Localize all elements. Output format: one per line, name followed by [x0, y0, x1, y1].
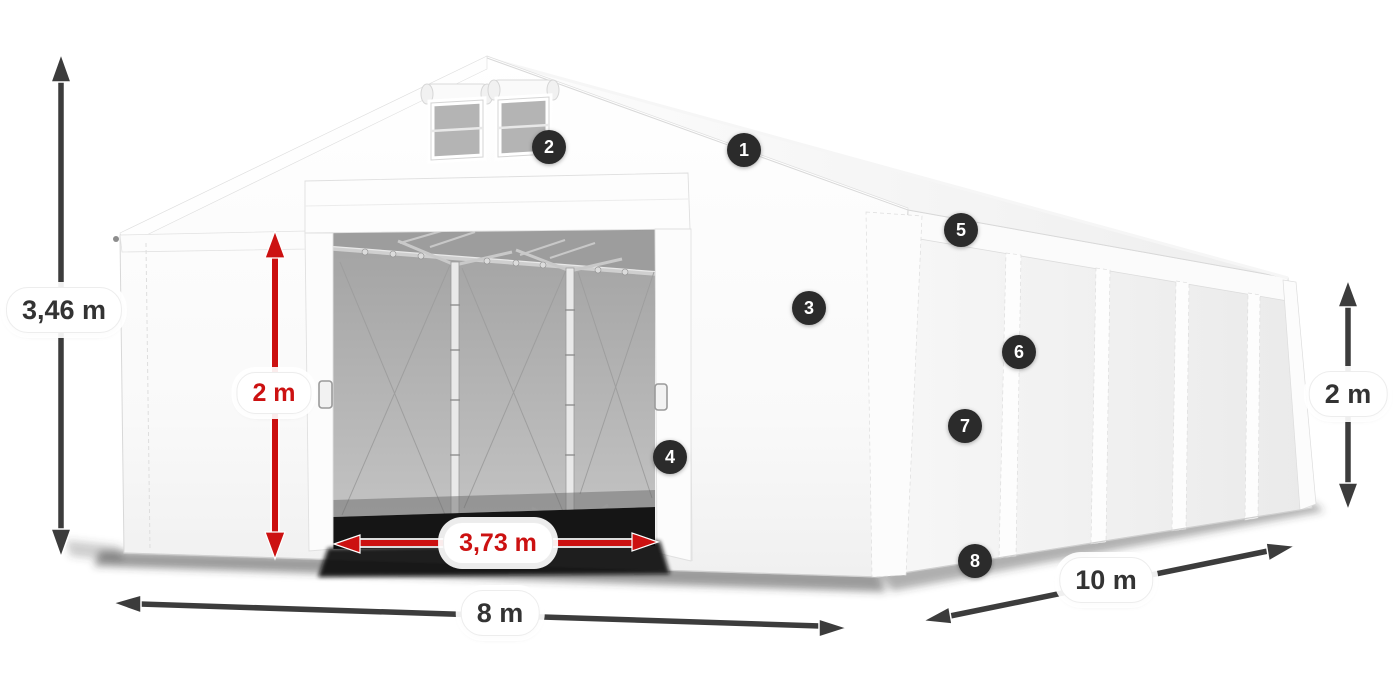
hotspot-7[interactable]: 7	[948, 409, 982, 443]
hotspot-4[interactable]: 4	[653, 440, 687, 474]
hotspot-2[interactable]: 2	[532, 130, 566, 164]
front-width-label: 8 m	[461, 590, 540, 636]
hotspot-8[interactable]: 8	[958, 544, 992, 578]
hotspot-3[interactable]: 3	[792, 291, 826, 325]
entrance-header	[305, 173, 690, 233]
door-handle-right	[655, 384, 667, 410]
hotspot-1[interactable]: 1	[727, 133, 761, 167]
entrance-width-label: 3,73 m	[443, 522, 553, 564]
entrance-height-label: 2 m	[236, 372, 311, 414]
gable-vent-left	[421, 84, 493, 160]
tent-illustration	[0, 0, 1400, 700]
hotspot-5[interactable]: 5	[944, 213, 978, 247]
hotspot-6[interactable]: 6	[1002, 335, 1036, 369]
side-height-label: 2 m	[1309, 371, 1388, 417]
side-length-label: 10 m	[1059, 557, 1153, 603]
door-handle-left	[319, 381, 332, 408]
total-height-label: 3,46 m	[6, 287, 122, 333]
entrance-opening	[333, 229, 655, 549]
tent-dimension-diagram: 3,46 m 2 m 3,73 m 8 m 10 m 2 m 1 2 3 4 5…	[0, 0, 1400, 700]
eave-corner-fitting	[113, 236, 119, 242]
